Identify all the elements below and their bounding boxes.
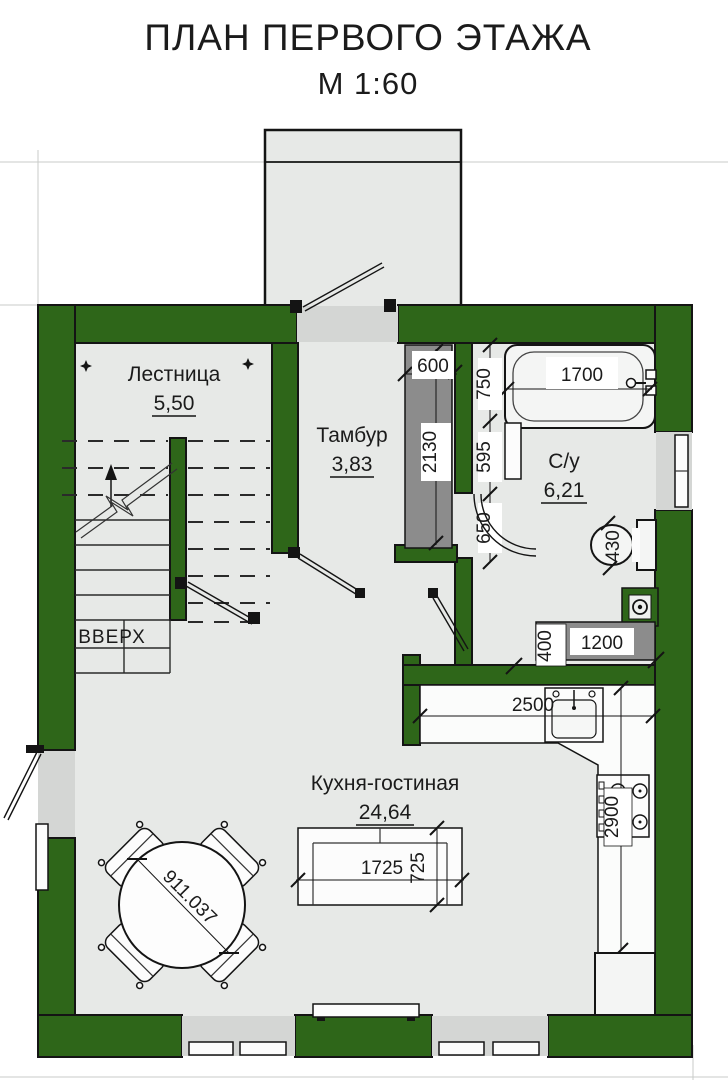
wall-top-left <box>38 305 297 343</box>
room-area-bathroom: 6,21 <box>544 479 585 502</box>
washbasin <box>505 423 521 479</box>
dim-sofa-depth: 725 <box>408 852 429 884</box>
terrace-door-second-leaf <box>36 824 48 890</box>
room-area-vestibule: 3,83 <box>332 453 373 476</box>
dim-toilet-width: 430 <box>603 530 624 562</box>
wall-left-upper <box>38 305 75 750</box>
room-label-bathroom: С/у <box>548 450 580 473</box>
dim-worktop-run: 2900 <box>602 796 623 838</box>
wall-bottom-right <box>548 1015 692 1057</box>
room-label-staircase: Лестница <box>128 363 221 386</box>
wall-vestibule-bath-lower <box>455 558 472 668</box>
room-label-vestibule: Тамбур <box>316 424 387 447</box>
dim-wall-seg-basin: 595 <box>474 441 495 473</box>
dim-worktop-length: 2500 <box>512 695 554 716</box>
wall-stair-vestibule <box>272 343 298 553</box>
dim-counter-depth: 400 <box>535 630 556 662</box>
room-area-staircase: 5,50 <box>154 392 195 415</box>
title-line-1: ПЛАН ПЕРВОГО ЭТАЖА <box>144 17 591 58</box>
porch <box>265 130 461 310</box>
drawing-title: ПЛАН ПЕРВОГО ЭТАЖА М 1:60 <box>144 17 591 101</box>
stairs-direction-label: ВВЕРХ <box>78 627 146 648</box>
dim-bath-length: 1700 <box>561 365 603 386</box>
dim-closet-depth: 2130 <box>420 431 441 473</box>
title-line-2: М 1:60 <box>318 66 419 101</box>
vestibule-closet: 600 2130 <box>398 344 462 550</box>
wall-top-right <box>398 305 692 343</box>
dim-sofa-length: 1725 <box>361 858 403 879</box>
dim-counter-length: 1200 <box>581 633 623 654</box>
floor-plan-canvas: 600 2130 1700 750 595 650 <box>0 0 728 1080</box>
stair-divider-wall <box>170 438 186 620</box>
kitchen-wall-horizontal <box>403 665 655 685</box>
kitchen-appliance <box>595 953 655 1015</box>
sofa: 1725 725 <box>291 821 469 912</box>
dim-wall-seg-tub: 750 <box>474 368 495 400</box>
wall-vestibule-bath-upper <box>455 343 472 493</box>
floor-plan-drawing: 600 2130 1700 750 595 650 <box>0 0 728 1080</box>
bathtub: 1700 <box>500 345 657 428</box>
entrance-threshold <box>297 306 398 342</box>
bath-window <box>675 435 688 507</box>
wall-bottom-mid <box>295 1015 432 1057</box>
wall-right-lower <box>655 510 692 1057</box>
dim-closet-width: 600 <box>417 356 449 377</box>
room-label-kitchen-living: Кухня-гостиная <box>311 772 460 795</box>
wall-right-upper <box>655 305 692 432</box>
floor-drain <box>622 588 658 626</box>
room-area-kitchen-living: 24,64 <box>359 801 412 824</box>
wall-bottom-left <box>38 1015 182 1057</box>
